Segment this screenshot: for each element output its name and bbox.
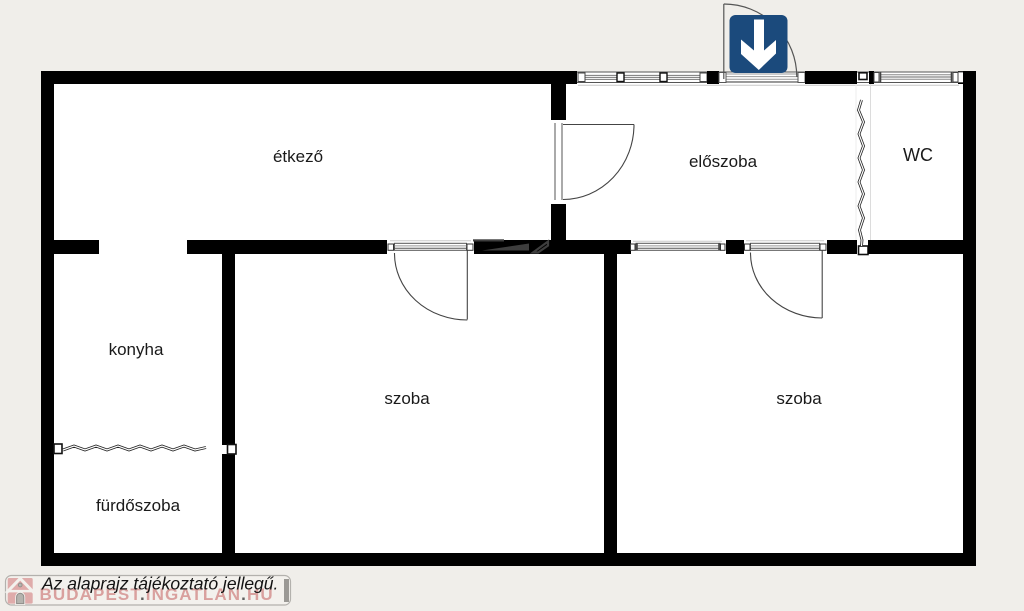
svg-text:étkező: étkező: [273, 147, 323, 166]
svg-text:konyha: konyha: [109, 340, 164, 359]
svg-text:szoba: szoba: [384, 389, 430, 408]
svg-text:WC: WC: [903, 145, 933, 165]
svg-text:előszoba: előszoba: [689, 152, 758, 171]
svg-text:szoba: szoba: [776, 389, 822, 408]
svg-text:Az alaprajz tájékoztató jelleg: Az alaprajz tájékoztató jellegű.: [41, 574, 278, 594]
svg-text:fürdőszoba: fürdőszoba: [96, 496, 181, 515]
